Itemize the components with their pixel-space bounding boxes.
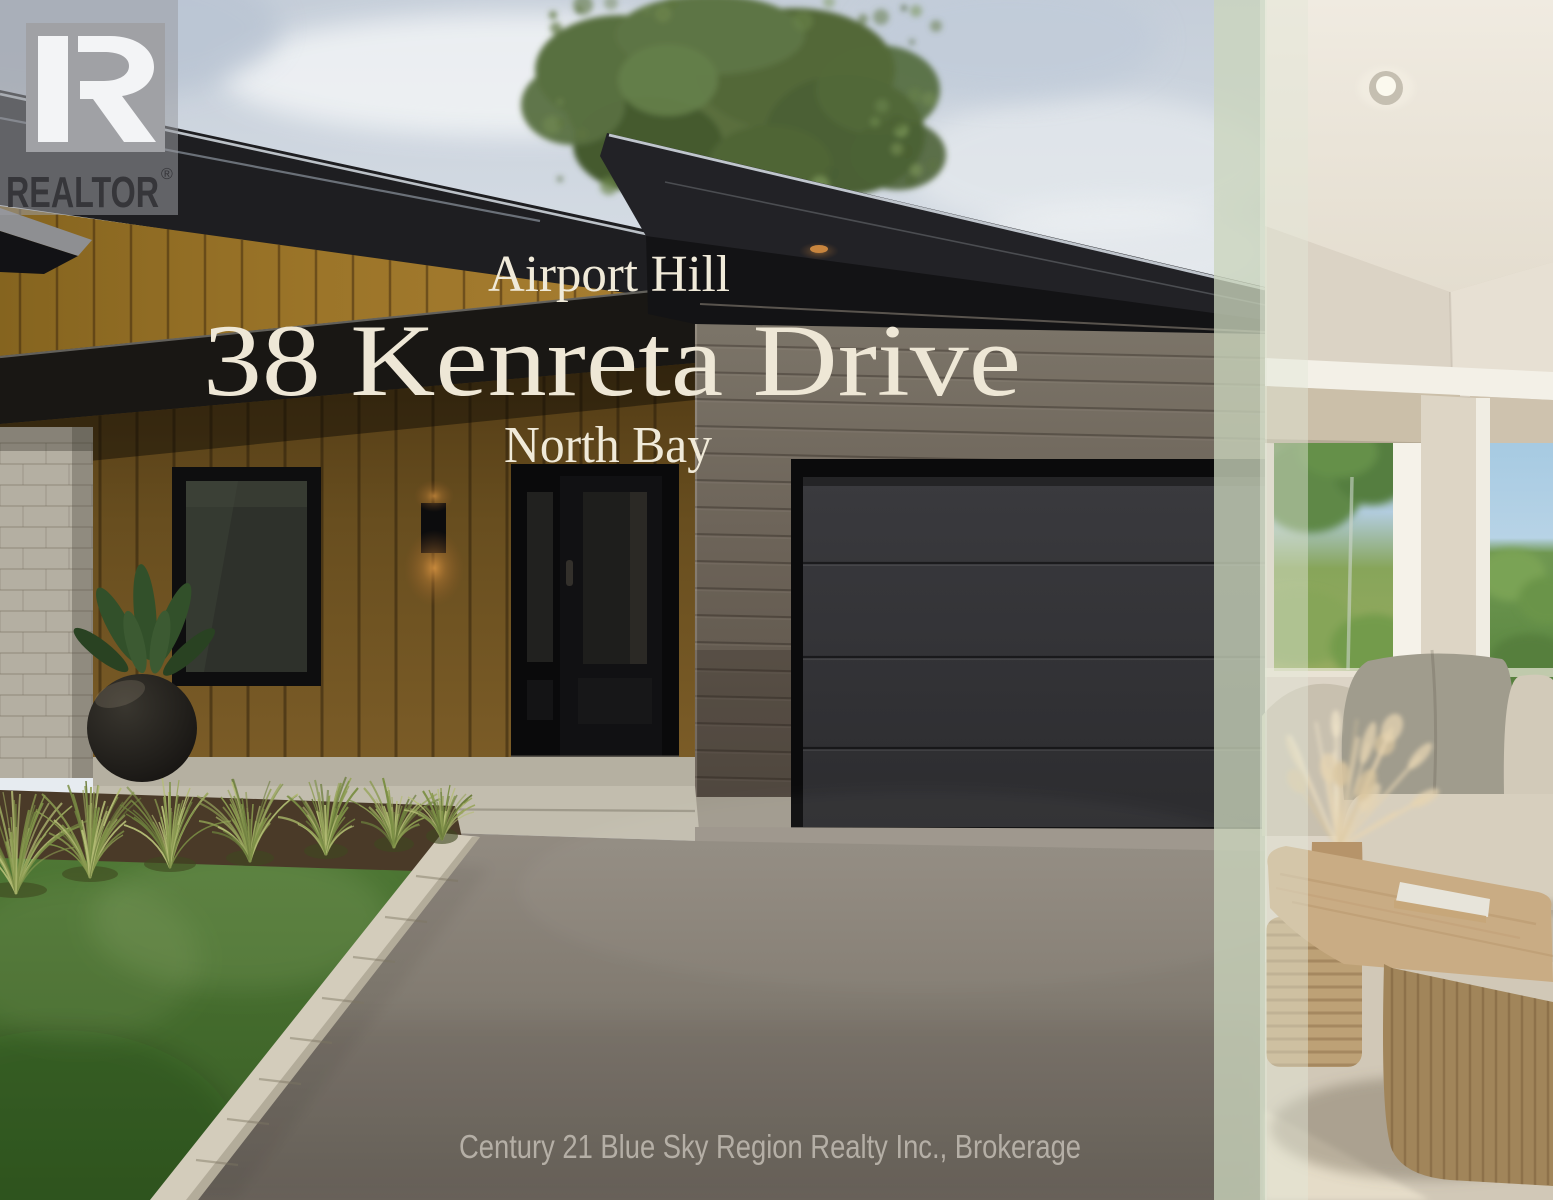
svg-text:REALTOR: REALTOR xyxy=(6,168,159,217)
svg-text:Century 21 Blue Sky Region Rea: Century 21 Blue Sky Region Realty Inc., … xyxy=(459,1128,1081,1165)
svg-text:38 Kenreta Drive: 38 Kenreta Drive xyxy=(203,304,1021,418)
svg-text:North Bay: North Bay xyxy=(504,417,712,474)
svg-text:Airport Hill: Airport Hill xyxy=(488,246,730,303)
svg-text:®: ® xyxy=(161,166,173,183)
